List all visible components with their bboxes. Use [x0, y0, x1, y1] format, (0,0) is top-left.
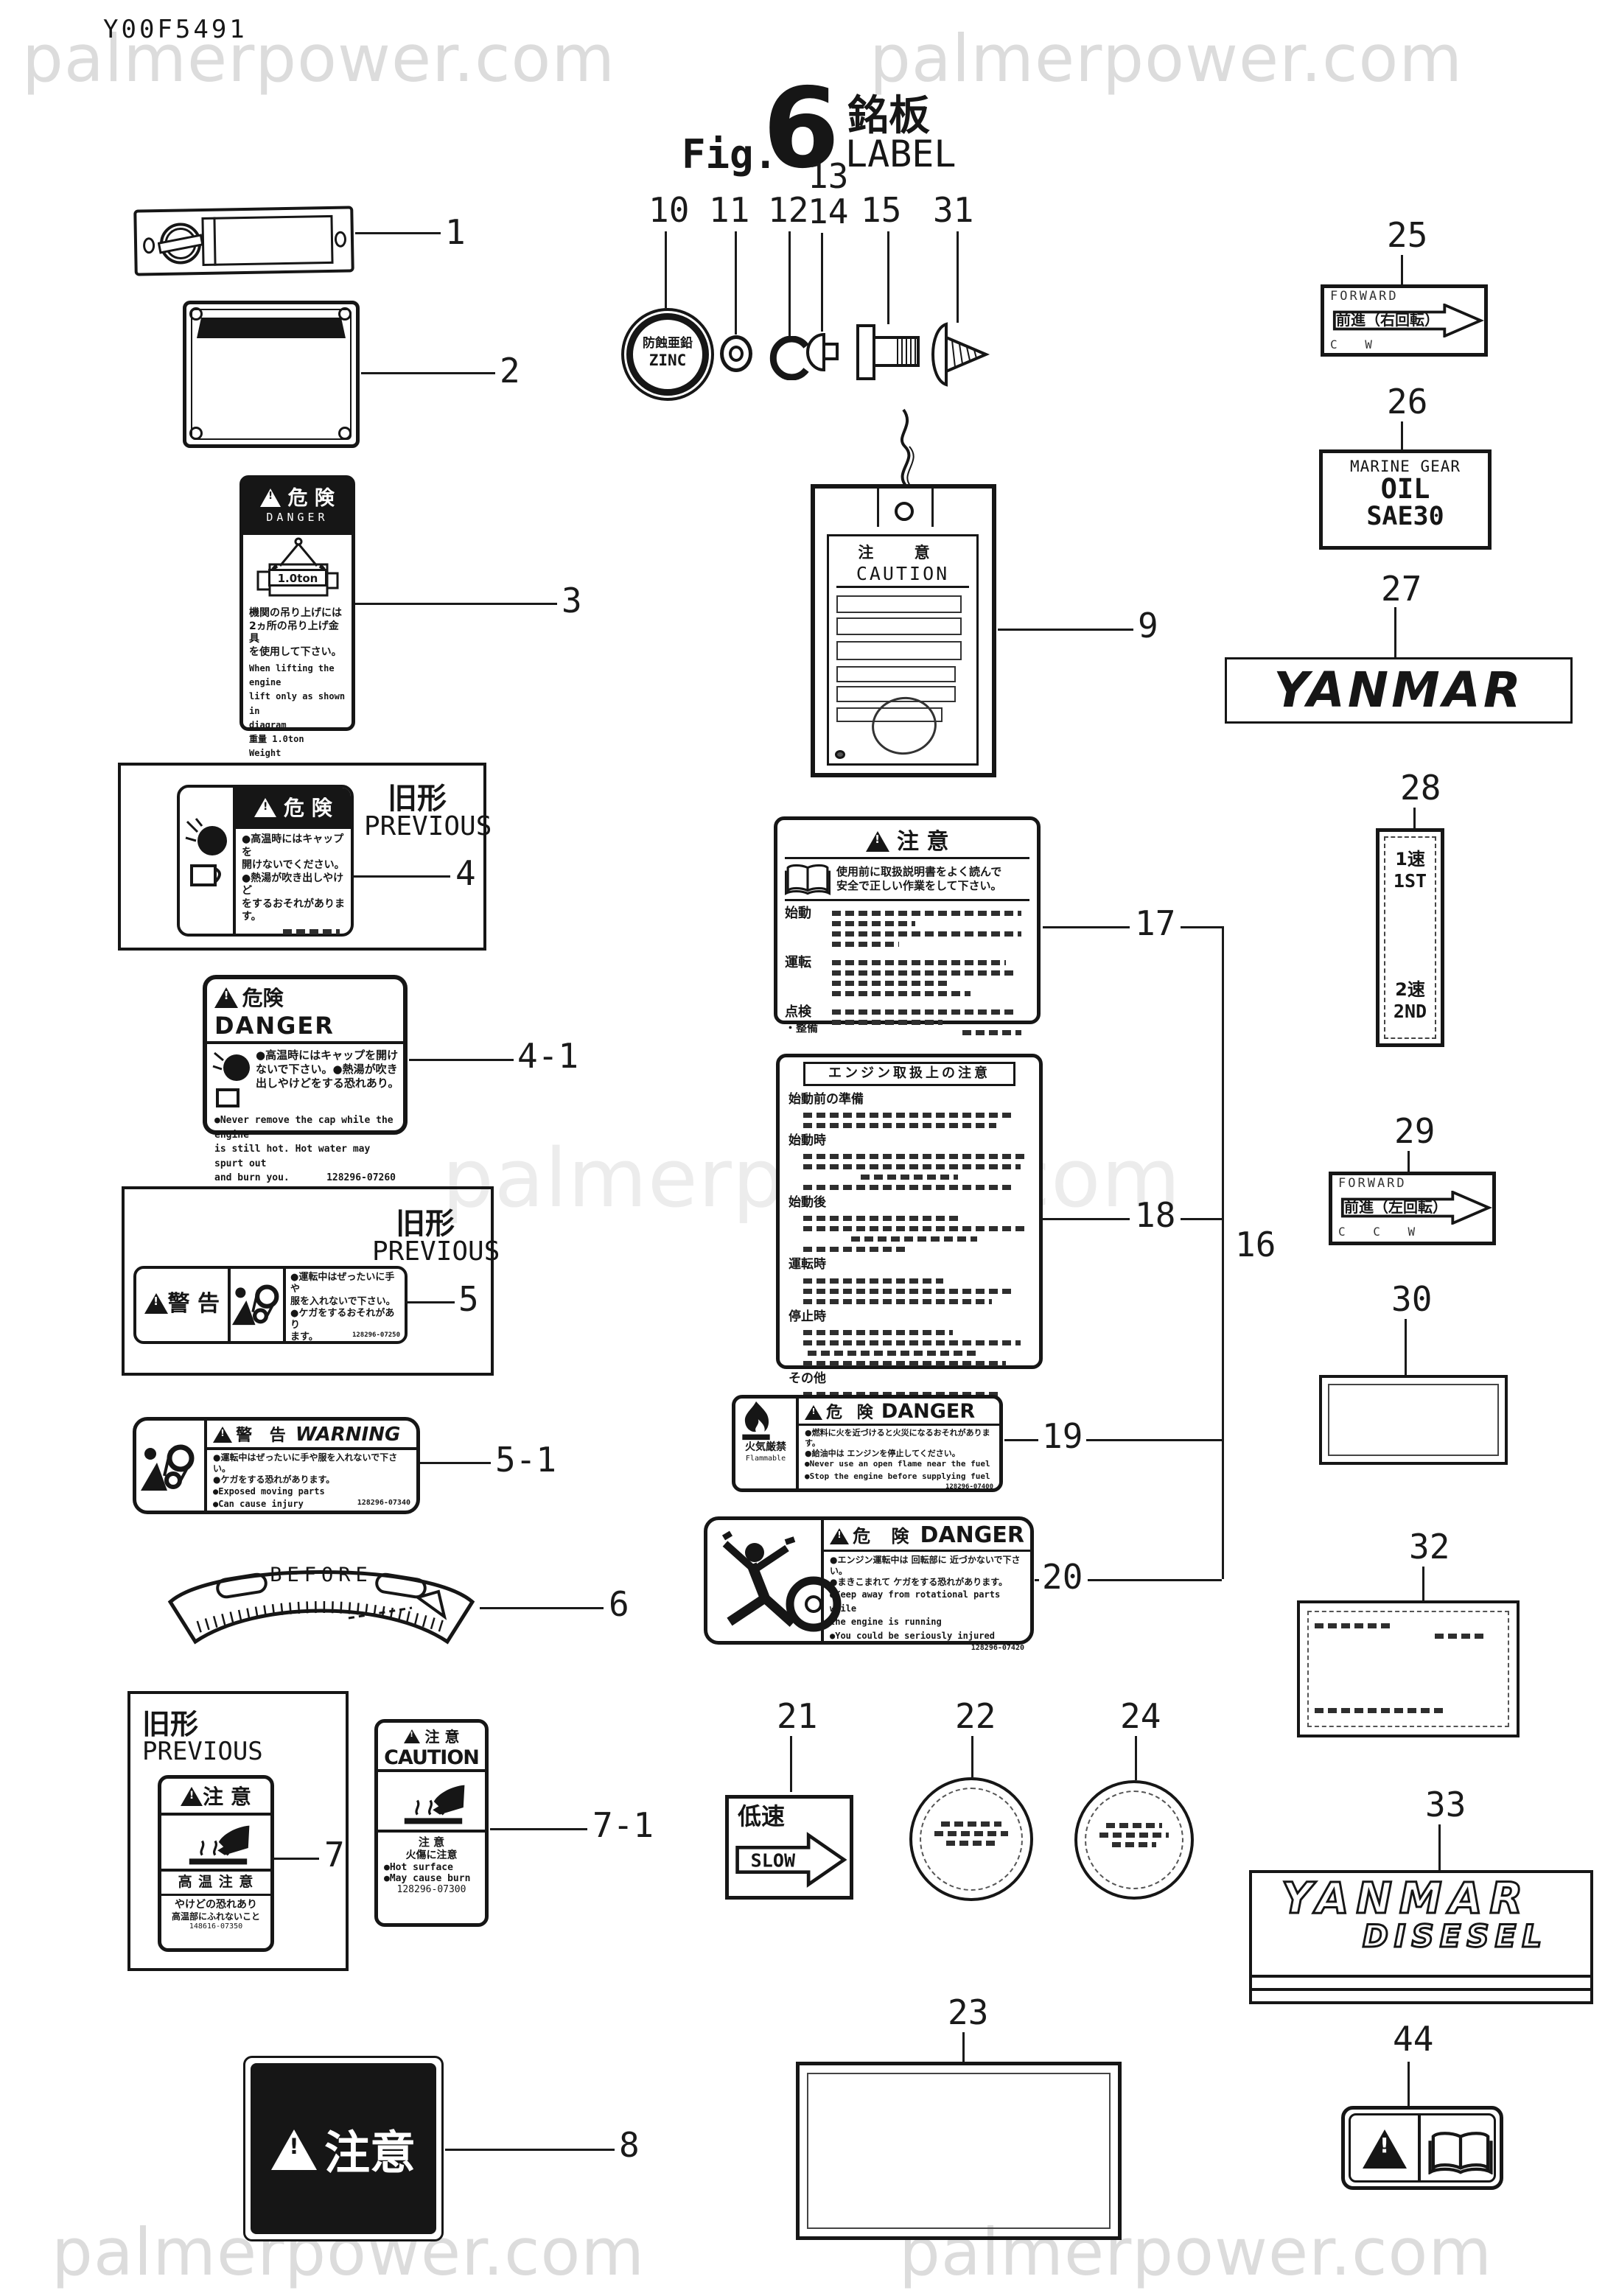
label4-jp-line: ●高温時にはキャップを — [242, 833, 345, 859]
screw-hole — [189, 427, 203, 440]
label18-section: 運転時 — [788, 1257, 1030, 1273]
label4_1-en-line: ●Never remove the cap while the engine — [214, 1113, 396, 1142]
leader-10 — [665, 231, 667, 308]
label19-header-en: DANGER — [881, 1400, 975, 1423]
timing-scale-plate: BEFORE — [164, 1555, 478, 1646]
blank-plate — [796, 2062, 1122, 2240]
label7-jp-line: やけどの恐れあり — [161, 1896, 270, 1912]
label20-jp-line: ●エンジン運転中は 回転部に 近づかないで下さい。 — [830, 1555, 1024, 1577]
leader-30 — [1405, 1319, 1407, 1375]
label7-jp-line: 高温部にふれないこと — [161, 1911, 270, 1922]
tag-mark — [835, 750, 845, 759]
callout-1: 1 — [445, 215, 466, 249]
plate-black-bar — [197, 318, 346, 338]
leader-13-14 — [821, 233, 823, 332]
label17-section: ・整備 — [785, 1021, 832, 1035]
callout-27: 27 — [1381, 572, 1422, 606]
label18-section: 始動前の準備 — [788, 1092, 1030, 1107]
previous-en: PREVIOUS — [364, 811, 492, 841]
bracket-stub — [1181, 1218, 1222, 1220]
callout-14: 14 — [808, 195, 848, 228]
callout-4: 4 — [455, 856, 476, 890]
warn-manual-label: ! — [1341, 2106, 1503, 2190]
leader-1 — [355, 232, 441, 234]
tag-text-row — [836, 666, 956, 682]
entanglement-icon — [713, 1530, 843, 1634]
label4_1-jp-line: 出しやけどをする恐れあり。 — [256, 1077, 399, 1091]
leader-7-1 — [490, 1828, 587, 1830]
yanmar-diesel-label: YANMAR DISESEL — [1249, 1870, 1593, 2004]
callout-31: 31 — [933, 193, 973, 227]
callout-25: 25 — [1387, 218, 1427, 252]
label25-top: FORWARD — [1330, 289, 1478, 304]
label5_1-jp-line: ●運転中はぜったいに手や服を入れないで下さい。 — [213, 1452, 410, 1474]
yanmar-wordmark-label: YANMAR — [1225, 657, 1573, 724]
label7_1-en-line: ●May cause burn — [378, 1873, 485, 1884]
drive-screw — [926, 321, 993, 389]
label5-jp-line: ●運転中はぜったいに手や — [290, 1272, 400, 1296]
callout-21: 21 — [777, 1699, 817, 1733]
label4-jp-line: ●熱湯が吹き出しやけど — [242, 872, 345, 898]
watermark: palmerpower.com — [870, 21, 1463, 97]
caution-readmanual-label: ! 注 意 使用前に取扱説明書をよく読んで 安全で正しい作業をして下さい。 始動 — [774, 816, 1041, 1024]
tag-text-row — [836, 595, 962, 613]
leader-3 — [355, 603, 557, 605]
label20-en-line: ●You could be seriously injured — [830, 1631, 995, 1641]
caution-hang-tag: 注 意 CAUTION — [811, 484, 996, 777]
open-book-icon — [785, 862, 831, 896]
leader-5-1 — [420, 1462, 491, 1464]
tiny-part-code — [283, 929, 340, 934]
label18-section: 始動後 — [788, 1195, 1030, 1211]
callout-4-1: 4-1 — [517, 1039, 578, 1073]
label21-jp: 低速 — [738, 1802, 845, 1831]
warning-triangle-icon: ! — [254, 796, 276, 817]
label7_1-jp-line: 火傷に注意 — [378, 1849, 485, 1863]
label4_1-part-code: 128296-07260 — [326, 1171, 396, 1186]
warning-triangle-icon: ! — [260, 486, 281, 507]
danger-cap-label: ! 危険 DANGER ●高温時にはキャップを開け ないで下さい。●熱湯が吹き … — [203, 975, 408, 1135]
leader-19 — [1004, 1439, 1038, 1441]
previous-en: PREVIOUS — [372, 1236, 500, 1267]
label17-intro: 使用前に取扱説明書をよく読んで — [836, 865, 1002, 879]
label20-jp-line: ●まきこまれて ケガをする恐れがあります。 — [830, 1577, 1024, 1588]
leader-27 — [1394, 607, 1396, 657]
hot-surface-icon — [393, 1778, 474, 1825]
previous-box-5: 旧形 PREVIOUS !警 告 ●運転中はぜったいに手や 服を入れないで下さい… — [122, 1186, 494, 1376]
label18-section: その他 — [788, 1371, 1030, 1387]
leader-44 — [1408, 2062, 1410, 2106]
danger-flammable-label: 火気厳禁 Flammable ! 危 険 DANGER ●燃料に火を近づけると火… — [732, 1395, 1003, 1492]
label4-header: 危 険 — [284, 796, 332, 820]
previous-box-7: 旧形 PREVIOUS !注 意 高 温 注 意 やけどの恐れあり 高温部にふれ… — [127, 1691, 349, 1971]
label7_1-part-code: 128296-07300 — [378, 1884, 485, 1895]
leader-25 — [1401, 255, 1403, 284]
leader-29 — [1408, 1151, 1410, 1172]
label18-section: 停止時 — [788, 1309, 1030, 1325]
screw-hole — [338, 307, 352, 321]
leader-12 — [788, 231, 791, 336]
callout-8: 8 — [619, 2128, 640, 2162]
slow-arrow: SLOW — [733, 1831, 848, 1889]
marine-gear-oil-label: MARINE GEAR OIL SAE30 — [1319, 449, 1492, 550]
callout-9: 9 — [1138, 609, 1158, 643]
caution-hot-label-previous: !注 意 高 温 注 意 やけどの恐れあり 高温部にふれないこと 148616-… — [158, 1775, 274, 1952]
label3-jp-line: 2ヵ所の吊り上げ金具 — [249, 620, 346, 646]
label29-bottom: C C W — [1338, 1225, 1486, 1239]
engine-notes-label: エンジン取扱上の注意 始動前の準備 始動時 始動後 運転時 停止時 その他 — [776, 1054, 1043, 1369]
leader-5 — [405, 1301, 455, 1303]
leader-17 — [1043, 926, 1130, 928]
label29-mid: 前進（左回転） — [1344, 1198, 1447, 1217]
open-book-icon — [1428, 2130, 1493, 2174]
bracket-stub — [1088, 1579, 1222, 1581]
leader-4-1 — [409, 1059, 514, 1061]
label5_1-part-code: 128296-07340 — [357, 1498, 410, 1509]
tag-hole — [895, 502, 914, 521]
nameplate-blank — [133, 206, 354, 276]
label4-jp-line: 開けないでください。 — [242, 859, 345, 872]
belt-pulley-icon — [232, 1279, 284, 1331]
caution-black-label: ! 注意 — [243, 2056, 444, 2241]
label20-en-line: the engine is running — [830, 1615, 1024, 1629]
label33-band — [1249, 1975, 1593, 1991]
callout-32: 32 — [1409, 1530, 1450, 1564]
forward-cw-label: FORWARD 前進（右回転） C W — [1321, 284, 1488, 357]
danger-cap-label-previous: ! 危 険 ●高温時にはキャップを 開けないでください。 ●熱湯が吹き出しやけど… — [177, 785, 354, 937]
label7-band: 高 温 注 意 — [161, 1872, 270, 1896]
callout-18: 18 — [1135, 1198, 1175, 1232]
mount-hole — [335, 231, 346, 248]
label20-header-en: DANGER — [920, 1522, 1024, 1548]
label7-header: 注 意 — [203, 1785, 251, 1809]
leader-9 — [998, 629, 1133, 631]
cap-nut — [806, 332, 845, 373]
warning-triangle-icon: ! — [214, 985, 238, 1008]
warning-triangle-icon: ! — [181, 1785, 203, 1806]
label18-section: 始動時 — [788, 1133, 1030, 1149]
leader-23 — [962, 2032, 965, 2062]
bracket-stub — [1181, 926, 1222, 928]
blank-label — [1319, 1375, 1508, 1465]
leader-33 — [1438, 1824, 1441, 1870]
label3-header-en: DANGER — [243, 511, 352, 524]
zinc-anode: 防蝕亜鉛 ZINC — [621, 308, 714, 401]
callout-11: 11 — [709, 193, 749, 227]
bolt — [855, 323, 923, 382]
leader-24 — [1135, 1736, 1137, 1780]
label5_1-jp-line: ●ケガをする恐れがあります。 — [213, 1474, 410, 1485]
leader-26 — [1401, 421, 1403, 449]
zinc-jp: 防蝕亜鉛 — [633, 336, 702, 351]
callout-5-1: 5-1 — [495, 1443, 556, 1477]
washer — [720, 335, 752, 372]
label17-intro: 安全で正しい作業をして下さい。 — [836, 879, 1002, 893]
callout-7: 7 — [324, 1838, 345, 1872]
label7_1-jp-line: 注 意 — [378, 1833, 485, 1849]
leader-22 — [971, 1736, 973, 1777]
callout-23: 23 — [948, 1995, 988, 2029]
mount-hole — [143, 237, 155, 253]
round-decal — [1074, 1780, 1194, 1900]
callout-3: 3 — [562, 584, 582, 617]
label4_1-en-line: and burn you. — [214, 1172, 290, 1183]
label5_1-en-line: ●Can cause injury — [213, 1499, 304, 1509]
catalog-page: palmerpower.com palmerpower.com palmerpo… — [0, 0, 1619, 2296]
label17-section: 運転 — [785, 955, 832, 1001]
yanmar-outline-text: YANMAR — [1281, 1876, 1590, 1921]
slow-label: 低速 SLOW — [725, 1795, 853, 1900]
label9-header-en: CAUTION — [836, 563, 969, 588]
label25-bottom: C W — [1330, 337, 1478, 351]
danger-lift-label: ! 危 険 DANGER 1.0ton 機関の吊り上げには 2ヵ所の吊り上げ金具… — [239, 475, 355, 731]
tag-string — [877, 404, 936, 489]
hot-water-spray-icon — [183, 817, 230, 906]
callout-28: 28 — [1400, 771, 1441, 805]
warning-triangle-icon: ! — [830, 1526, 849, 1544]
warning-triangle-icon: ! — [404, 1727, 420, 1743]
leader-7 — [270, 1858, 319, 1860]
figure-title-en: LABEL — [845, 133, 957, 175]
label4_1-en-line: is still hot. Hot water may spurt out — [214, 1142, 396, 1171]
label5-jp-line: ●ケガをするおそれがあり — [290, 1308, 400, 1332]
label5_1-en-line: ●Exposed moving parts — [213, 1485, 410, 1498]
label20-en-line: ●Keep away from rotational parts while — [830, 1588, 1024, 1615]
label17-section: 点検 — [785, 1004, 832, 1021]
leader-20 — [1035, 1579, 1039, 1581]
warning-triangle-icon: ! — [1363, 2127, 1407, 2169]
forward-ccw-label: FORWARD 前進（左回転） C C W — [1329, 1172, 1496, 1245]
label7_1-header-en: CAUTION — [378, 1746, 485, 1772]
leader-4 — [352, 875, 450, 878]
label19-jp-line: ●燃料に火を近づけると火災になるおそれがあります。 — [805, 1428, 993, 1449]
label3-weight-en: Weight — [249, 746, 346, 760]
page-code: Y00F5491 — [103, 15, 248, 44]
callout-29: 29 — [1394, 1114, 1435, 1148]
callout-44: 44 — [1393, 2022, 1433, 2056]
callout-19: 19 — [1042, 1419, 1083, 1453]
label21-en: SLOW — [751, 1849, 796, 1871]
warning-belt-label-previous: !警 告 ●運転中はぜったいに手や 服を入れないで下さい。 ●ケガをするおそれが… — [133, 1266, 408, 1344]
callout-13: 13 — [808, 159, 848, 193]
leader-15 — [887, 231, 889, 324]
label5-jp-line: 服を入れないで下さい。 — [290, 1296, 400, 1308]
callout-33: 33 — [1425, 1788, 1466, 1821]
belt-pulley-icon — [141, 1438, 200, 1497]
callout-7-1: 7-1 — [592, 1808, 654, 1842]
label5-jp-line: ます。 — [290, 1331, 318, 1343]
label3-en-line: When lifting the engine — [249, 662, 346, 690]
yanmar-emblem-icon — [158, 220, 204, 267]
caution-hot-label: ! 注 意 CAUTION 注 意 火傷に注意 ●Hot surface ●Ma… — [374, 1719, 489, 1927]
label5-part-code: 128296-07250 — [352, 1331, 400, 1340]
callout-20: 20 — [1042, 1560, 1083, 1594]
bracket-16 — [1222, 926, 1224, 1579]
warning-triangle-icon: ! — [213, 1424, 232, 1443]
label26-line2: OIL — [1323, 475, 1488, 503]
callout-16: 16 — [1235, 1228, 1276, 1261]
label4_1-jp-line: ないで下さい。●熱湯が吹き — [256, 1063, 399, 1077]
callout-6: 6 — [609, 1587, 629, 1621]
label7_1-header-jp: 注 意 — [425, 1728, 460, 1746]
label7-part-code: 148616-07350 — [161, 1922, 270, 1931]
label5_1-header-jp: 警 告 — [236, 1427, 292, 1445]
label19-side-jp: 火気厳禁 — [735, 1441, 796, 1455]
label3-en-line: lift only as shown in — [249, 690, 346, 718]
leader-6 — [480, 1607, 604, 1609]
label5-header: 警 告 — [168, 1291, 220, 1317]
flame-icon — [735, 1400, 777, 1441]
leader-11 — [735, 231, 737, 335]
screw-hole — [338, 427, 352, 440]
label18-title: エンジン取扱上の注意 — [803, 1062, 1015, 1086]
label19-en-line: ●Never use an open flame near the fuel — [805, 1458, 993, 1471]
label3-weight: 重量 1.0ton — [249, 734, 304, 744]
label20-header-jp: 危 険 — [853, 1526, 916, 1547]
callout-12: 12 — [768, 193, 808, 227]
hot-surface-icon — [178, 1819, 259, 1866]
label19-part-code: 128296-07400 — [945, 1483, 993, 1493]
zinc-en: ZINC — [633, 351, 702, 369]
nameplate-field — [201, 215, 333, 266]
previous-jp: 旧形 — [142, 1701, 198, 1742]
warning-belt-label: ! 警 告 WARNING ●運転中はぜったいに手や服を入れないで下さい。 ●ケ… — [133, 1417, 420, 1514]
warning-triangle-icon: ! — [271, 2127, 317, 2170]
round-decal — [909, 1777, 1033, 1901]
leader-28 — [1413, 808, 1416, 828]
callout-15: 15 — [861, 193, 901, 227]
label17-section: 始動 — [785, 906, 832, 952]
yanmar-wordmark: YANMAR — [1227, 659, 1570, 721]
hoist-weight-box: 1.0ton — [268, 569, 327, 587]
callout-2: 2 — [500, 354, 520, 388]
leader-18 — [1043, 1218, 1130, 1220]
label19-jp-line: ●給油中は エンジンを停止してください。 — [805, 1449, 993, 1459]
callout-24: 24 — [1120, 1699, 1161, 1733]
screw-hole — [189, 307, 203, 321]
plate-black-band — [183, 301, 360, 448]
leader-2 — [361, 372, 495, 374]
label7_1-en-line: ●Hot surface — [378, 1862, 485, 1873]
leader-31 — [957, 231, 959, 323]
callout-22: 22 — [955, 1699, 996, 1733]
label19-side-en: Flammable — [735, 1455, 796, 1463]
label19-en-line: ●Stop the engine before supplying fuel — [805, 1471, 990, 1481]
leader-21 — [790, 1736, 792, 1792]
gear-speed-label: 1速 1ST 2速 2ND — [1376, 828, 1444, 1047]
label17-header: 注 意 — [897, 829, 948, 855]
label5_1-header-en: WARNING — [296, 1424, 400, 1446]
danger-rotating-label: ! 危 険 DANGER ●エンジン運転中は 回転部に 近づかないで下さい。 ●… — [704, 1516, 1034, 1645]
hot-water-spray-icon — [210, 1049, 253, 1113]
diesel-outline-text: DISESEL — [1363, 1921, 1590, 1952]
leader-32 — [1422, 1567, 1424, 1600]
label3-jp-line: を使用して下さい。 — [249, 646, 346, 659]
label4_1-header-jp: 危険 — [242, 986, 284, 1010]
label3-en-line: diagram — [249, 718, 346, 732]
label29-top: FORWARD — [1338, 1176, 1486, 1191]
callout-10: 10 — [648, 193, 689, 227]
label3-header-jp: 危 険 — [288, 487, 335, 510]
previous-box-4: 旧形 PREVIOUS ! 危 険 ●高温時にはキャップを 開けないでください。 — [118, 763, 486, 951]
warning-triangle-icon: ! — [144, 1291, 168, 1314]
warning-triangle-icon: ! — [805, 1403, 822, 1420]
label25-mid: 前進（右回転） — [1336, 311, 1439, 329]
label20-part-code: 128296-07420 — [971, 1642, 1024, 1654]
leader-8 — [445, 2149, 615, 2151]
label4-jp-line: をするおそれがあります。 — [242, 898, 345, 924]
callout-5: 5 — [458, 1282, 479, 1316]
callout-30: 30 — [1391, 1282, 1432, 1316]
tag-text-row — [836, 641, 962, 660]
label26-line3: SAE30 — [1323, 503, 1488, 531]
label9-header-jp: 注 意 — [836, 541, 969, 563]
label8-text: 注意 — [324, 2115, 416, 2182]
label4_1-header-en: DANGER — [214, 1012, 335, 1040]
spec-plate — [1297, 1600, 1520, 1737]
label6-text: BEFORE — [270, 1564, 373, 1586]
callout-26: 26 — [1387, 385, 1427, 419]
label4_1-jp-line: ●高温時にはキャップを開け — [256, 1049, 399, 1063]
label3-jp-line: 機関の吊り上げには — [249, 607, 346, 620]
bracket-stub — [1086, 1439, 1222, 1441]
label19-header-jp: 危 険 — [826, 1404, 878, 1422]
tag-text-row — [836, 617, 962, 635]
callout-17: 17 — [1135, 906, 1175, 940]
previous-en: PREVIOUS — [142, 1737, 263, 1766]
warning-triangle-icon: ! — [866, 829, 889, 852]
